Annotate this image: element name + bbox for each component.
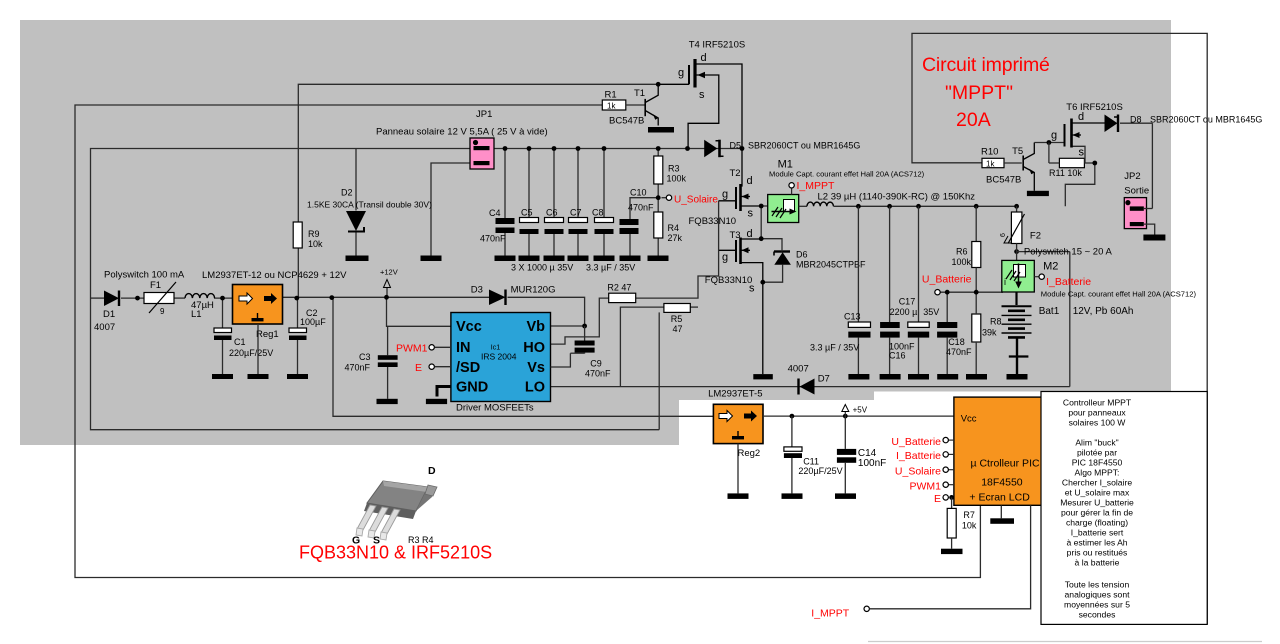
svg-text:solaires 100 W: solaires 100 W (1069, 418, 1127, 428)
svg-text:R3: R3 (668, 164, 680, 174)
svg-text:470nF: 470nF (585, 369, 611, 379)
svg-text:M2: M2 (1043, 261, 1058, 273)
svg-text:Circuit imprimé: Circuit imprimé (922, 54, 1050, 76)
svg-text:R9: R9 (308, 229, 320, 239)
svg-text:R11 10k: R11 10k (1049, 168, 1082, 178)
svg-text:C17: C17 (899, 297, 916, 307)
svg-text:+ Ecran LCD: + Ecran LCD (969, 491, 1030, 503)
svg-text:D: D (428, 465, 436, 477)
svg-text:100k: 100k (667, 174, 687, 184)
svg-text:C5: C5 (521, 208, 533, 218)
svg-text:Alim "buck": Alim "buck" (1075, 438, 1118, 448)
svg-text:27k: 27k (668, 233, 683, 243)
svg-text:12V, Pb 60Ah: 12V, Pb 60Ah (1073, 306, 1134, 317)
svg-text:LO: LO (525, 380, 545, 396)
svg-text:L2 39 µH (1140-390K-RC) @ 15: L2 39 µH (1140-390K-RC) @ 150Khz (818, 192, 976, 203)
svg-text:C4: C4 (489, 208, 501, 218)
svg-text:47: 47 (673, 324, 683, 334)
svg-text:Vs: Vs (527, 360, 545, 376)
svg-text:pour panneaux: pour panneaux (1068, 408, 1126, 418)
svg-text:100k: 100k (952, 257, 972, 267)
svg-text:d: d (747, 175, 753, 187)
svg-text:T5: T5 (1012, 146, 1023, 157)
svg-text:I_Batterie: I_Batterie (896, 450, 941, 462)
svg-text:Driver MOSFEETs: Driver MOSFEETs (456, 403, 534, 414)
svg-text:U_Solaire: U_Solaire (895, 466, 941, 478)
svg-text:g: g (678, 67, 684, 79)
svg-text:18F4550: 18F4550 (981, 476, 1023, 488)
svg-text:Reg1: Reg1 (256, 329, 279, 340)
svg-text:s: s (699, 89, 705, 101)
svg-text:Chercher I_solaire: Chercher I_solaire (1062, 478, 1132, 488)
svg-text:R1: R1 (605, 90, 617, 101)
svg-text:Toute les tension: Toute les tension (1065, 580, 1130, 590)
svg-text:Vb: Vb (526, 319, 545, 335)
svg-text:L1: L1 (191, 309, 202, 320)
svg-text:IN: IN (456, 340, 471, 356)
svg-text:U_Batterie: U_Batterie (922, 274, 972, 286)
svg-text:GND: GND (456, 380, 488, 396)
svg-text:JP2: JP2 (1124, 171, 1140, 182)
svg-text:à la batterie: à la batterie (1075, 558, 1120, 568)
svg-text:PIC 18F4550: PIC 18F4550 (1072, 458, 1123, 468)
svg-text:FQB33N10: FQB33N10 (689, 216, 737, 227)
svg-text:pour gérer la fin de: pour gérer la fin de (1061, 508, 1133, 518)
svg-text:470nF: 470nF (345, 363, 371, 373)
svg-text:R6: R6 (956, 247, 968, 257)
svg-text:HO: HO (523, 340, 545, 356)
svg-text:20A: 20A (956, 109, 991, 131)
svg-text:Vcc: Vcc (961, 413, 977, 424)
svg-text:s: s (748, 208, 754, 220)
svg-text:T6 IRF5210S: T6 IRF5210S (1066, 102, 1123, 113)
svg-text:pris ou restitués: pris ou restitués (1067, 548, 1128, 558)
svg-text:2200 µ: 2200 µ (890, 307, 918, 317)
svg-text:MUR120G: MUR120G (511, 285, 556, 296)
svg-text:C18: C18 (948, 337, 965, 347)
svg-text:T1: T1 (634, 88, 645, 99)
svg-text:Bat1: Bat1 (1039, 306, 1060, 317)
svg-text:C16: C16 (889, 351, 906, 361)
svg-text:D7: D7 (818, 374, 830, 385)
svg-text:BC547B: BC547B (986, 175, 1021, 186)
svg-text:F1: F1 (150, 280, 161, 291)
svg-text:Polyswitch 100 mA: Polyswitch 100 mA (104, 270, 185, 281)
svg-text:Module Capt. courant effet Ha: Module Capt. courant effet Hall 20A (ACS… (769, 170, 925, 179)
svg-text:µ Ctrolleur PIC: µ Ctrolleur PIC (971, 458, 1040, 470)
svg-text:4007: 4007 (94, 322, 115, 333)
svg-text:IRS 2004: IRS 2004 (481, 352, 517, 362)
svg-text:9: 9 (160, 307, 165, 316)
svg-text:35V: 35V (923, 307, 939, 317)
svg-text:3.3 µF / 35V: 3.3 µF / 35V (586, 263, 635, 273)
svg-text:C13: C13 (844, 312, 861, 322)
svg-text:MBR2045CTPBF: MBR2045CTPBF (796, 260, 866, 270)
svg-text:Module Capt. courant effet Hal: Module Capt. courant effet Hall 20A (ACS… (1041, 290, 1197, 299)
svg-text:I_MPPT: I_MPPT (811, 608, 850, 620)
svg-text:D1: D1 (103, 309, 115, 320)
svg-text:Algo MPPT:: Algo MPPT: (1075, 468, 1120, 478)
svg-text:analogiques sont: analogiques sont (1065, 590, 1131, 600)
svg-text:d: d (701, 52, 707, 64)
svg-text:FQB33N10 & IRF5210S: FQB33N10 & IRF5210S (299, 543, 492, 563)
svg-text:C1: C1 (234, 337, 246, 347)
svg-text:PWM1: PWM1 (396, 343, 428, 355)
svg-text:i: i (1004, 277, 1006, 287)
svg-text:3 X 1000 µ 35V: 3 X 1000 µ 35V (511, 263, 573, 273)
svg-text:1k: 1k (986, 159, 995, 168)
svg-text:moyennées sur 5: moyennées sur 5 (1064, 600, 1130, 610)
svg-text:charge (floating): charge (floating) (1066, 518, 1128, 528)
svg-text:d: d (1078, 111, 1084, 123)
svg-text:"MPPT": "MPPT" (945, 82, 1013, 104)
svg-text:R10: R10 (981, 147, 998, 158)
svg-text:R5: R5 (671, 314, 683, 324)
svg-text:LM2937ET-5: LM2937ET-5 (708, 388, 762, 399)
svg-text:SBR2060CT ou MBR1645G: SBR2060CT ou MBR1645G (1150, 115, 1262, 125)
svg-text:D3: D3 (471, 285, 483, 296)
svg-text:470nF: 470nF (480, 234, 506, 244)
svg-text:Reg2: Reg2 (738, 448, 761, 459)
svg-text:D8: D8 (1130, 115, 1142, 125)
svg-text:I_Batterie: I_Batterie (1046, 276, 1091, 288)
svg-text:g: g (722, 252, 728, 264)
svg-text:s: s (1079, 147, 1085, 159)
svg-text:D2: D2 (341, 188, 353, 198)
svg-text:g: g (1051, 130, 1057, 142)
svg-text:T4 IRF5210S: T4 IRF5210S (689, 40, 746, 51)
svg-text:U_Solaire: U_Solaire (674, 195, 718, 206)
svg-text:I_batterie sert: I_batterie sert (1071, 528, 1124, 538)
svg-text:10k: 10k (308, 239, 323, 249)
svg-text:SBR2060CT ou MBR1645G: SBR2060CT ou MBR1645G (748, 141, 860, 151)
svg-text:+5V: +5V (853, 406, 868, 415)
svg-text:220µF/25V: 220µF/25V (229, 348, 273, 358)
svg-text:secondes: secondes (1079, 610, 1116, 620)
svg-text:R7: R7 (963, 510, 975, 520)
svg-text:E: E (415, 362, 422, 374)
svg-text:100µF: 100µF (300, 317, 326, 327)
svg-text:/SD: /SD (456, 360, 480, 376)
svg-text:220µF/25V: 220µF/25V (798, 466, 842, 476)
svg-text:C8: C8 (592, 208, 604, 218)
svg-text:JP1: JP1 (476, 109, 492, 120)
svg-text:g: g (722, 189, 728, 201)
svg-text:Sortie: Sortie (1124, 186, 1149, 197)
svg-text:C9: C9 (590, 359, 602, 369)
svg-text:D6: D6 (796, 250, 808, 260)
svg-text:E: E (934, 493, 941, 505)
svg-text:4007: 4007 (788, 364, 809, 375)
svg-text:à estimer les Ah: à estimer les Ah (1066, 538, 1127, 548)
svg-text:I_MPPT: I_MPPT (797, 180, 836, 192)
svg-text:6: 6 (1000, 233, 1007, 237)
svg-text:470nF: 470nF (628, 203, 654, 213)
svg-text:pilotée par: pilotée par (1077, 448, 1117, 458)
svg-text:R8: R8 (990, 317, 1002, 327)
svg-text:100nF: 100nF (858, 458, 886, 469)
svg-text:C3: C3 (359, 352, 371, 362)
svg-text:R4: R4 (668, 223, 680, 233)
svg-text:Panneau solaire 12 V 5,5A ( 2: Panneau solaire 12 V 5,5A ( 25 V à vide) (376, 127, 548, 138)
svg-text:10k: 10k (962, 521, 977, 531)
svg-text:Polyswitch 15 ~ 20 A: Polyswitch 15 ~ 20 A (1024, 247, 1113, 258)
svg-text:C10: C10 (630, 188, 647, 198)
svg-text:Controlleur MPPT: Controlleur MPPT (1063, 398, 1132, 408)
svg-text:3.3 µF / 35V: 3.3 µF / 35V (810, 343, 859, 353)
svg-text:Ic1: Ic1 (491, 345, 500, 352)
svg-text:PWM1: PWM1 (910, 481, 942, 493)
svg-text:C6: C6 (546, 208, 558, 218)
svg-text:LM2937ET-12 ou NCP4629 + 12V: LM2937ET-12 ou NCP4629 + 12V (202, 270, 347, 281)
svg-text:R2 47: R2 47 (607, 283, 631, 293)
svg-text:et U_solaire max: et U_solaire max (1065, 488, 1130, 498)
svg-text:39k: 39k (982, 328, 997, 338)
svg-text:C7: C7 (570, 208, 582, 218)
svg-text:F2: F2 (1030, 231, 1041, 242)
svg-text:C11: C11 (803, 457, 819, 467)
svg-text:d: d (747, 228, 753, 240)
svg-text:T2: T2 (730, 168, 741, 179)
svg-text:Mesurer U_batterie: Mesurer U_batterie (1060, 498, 1134, 508)
svg-text:U_Batterie: U_Batterie (891, 436, 941, 448)
svg-text:470nF: 470nF (946, 347, 972, 357)
svg-text:Vcc: Vcc (456, 319, 482, 335)
svg-text:1.5KE 30CA (Transil double 30: 1.5KE 30CA (Transil double 30V) (307, 200, 432, 210)
svg-text:BC547B: BC547B (609, 116, 644, 127)
svg-text:+12V: +12V (380, 268, 398, 277)
svg-text:1k: 1k (607, 102, 616, 111)
svg-text:D5: D5 (730, 141, 742, 151)
svg-text:T3: T3 (730, 230, 741, 241)
